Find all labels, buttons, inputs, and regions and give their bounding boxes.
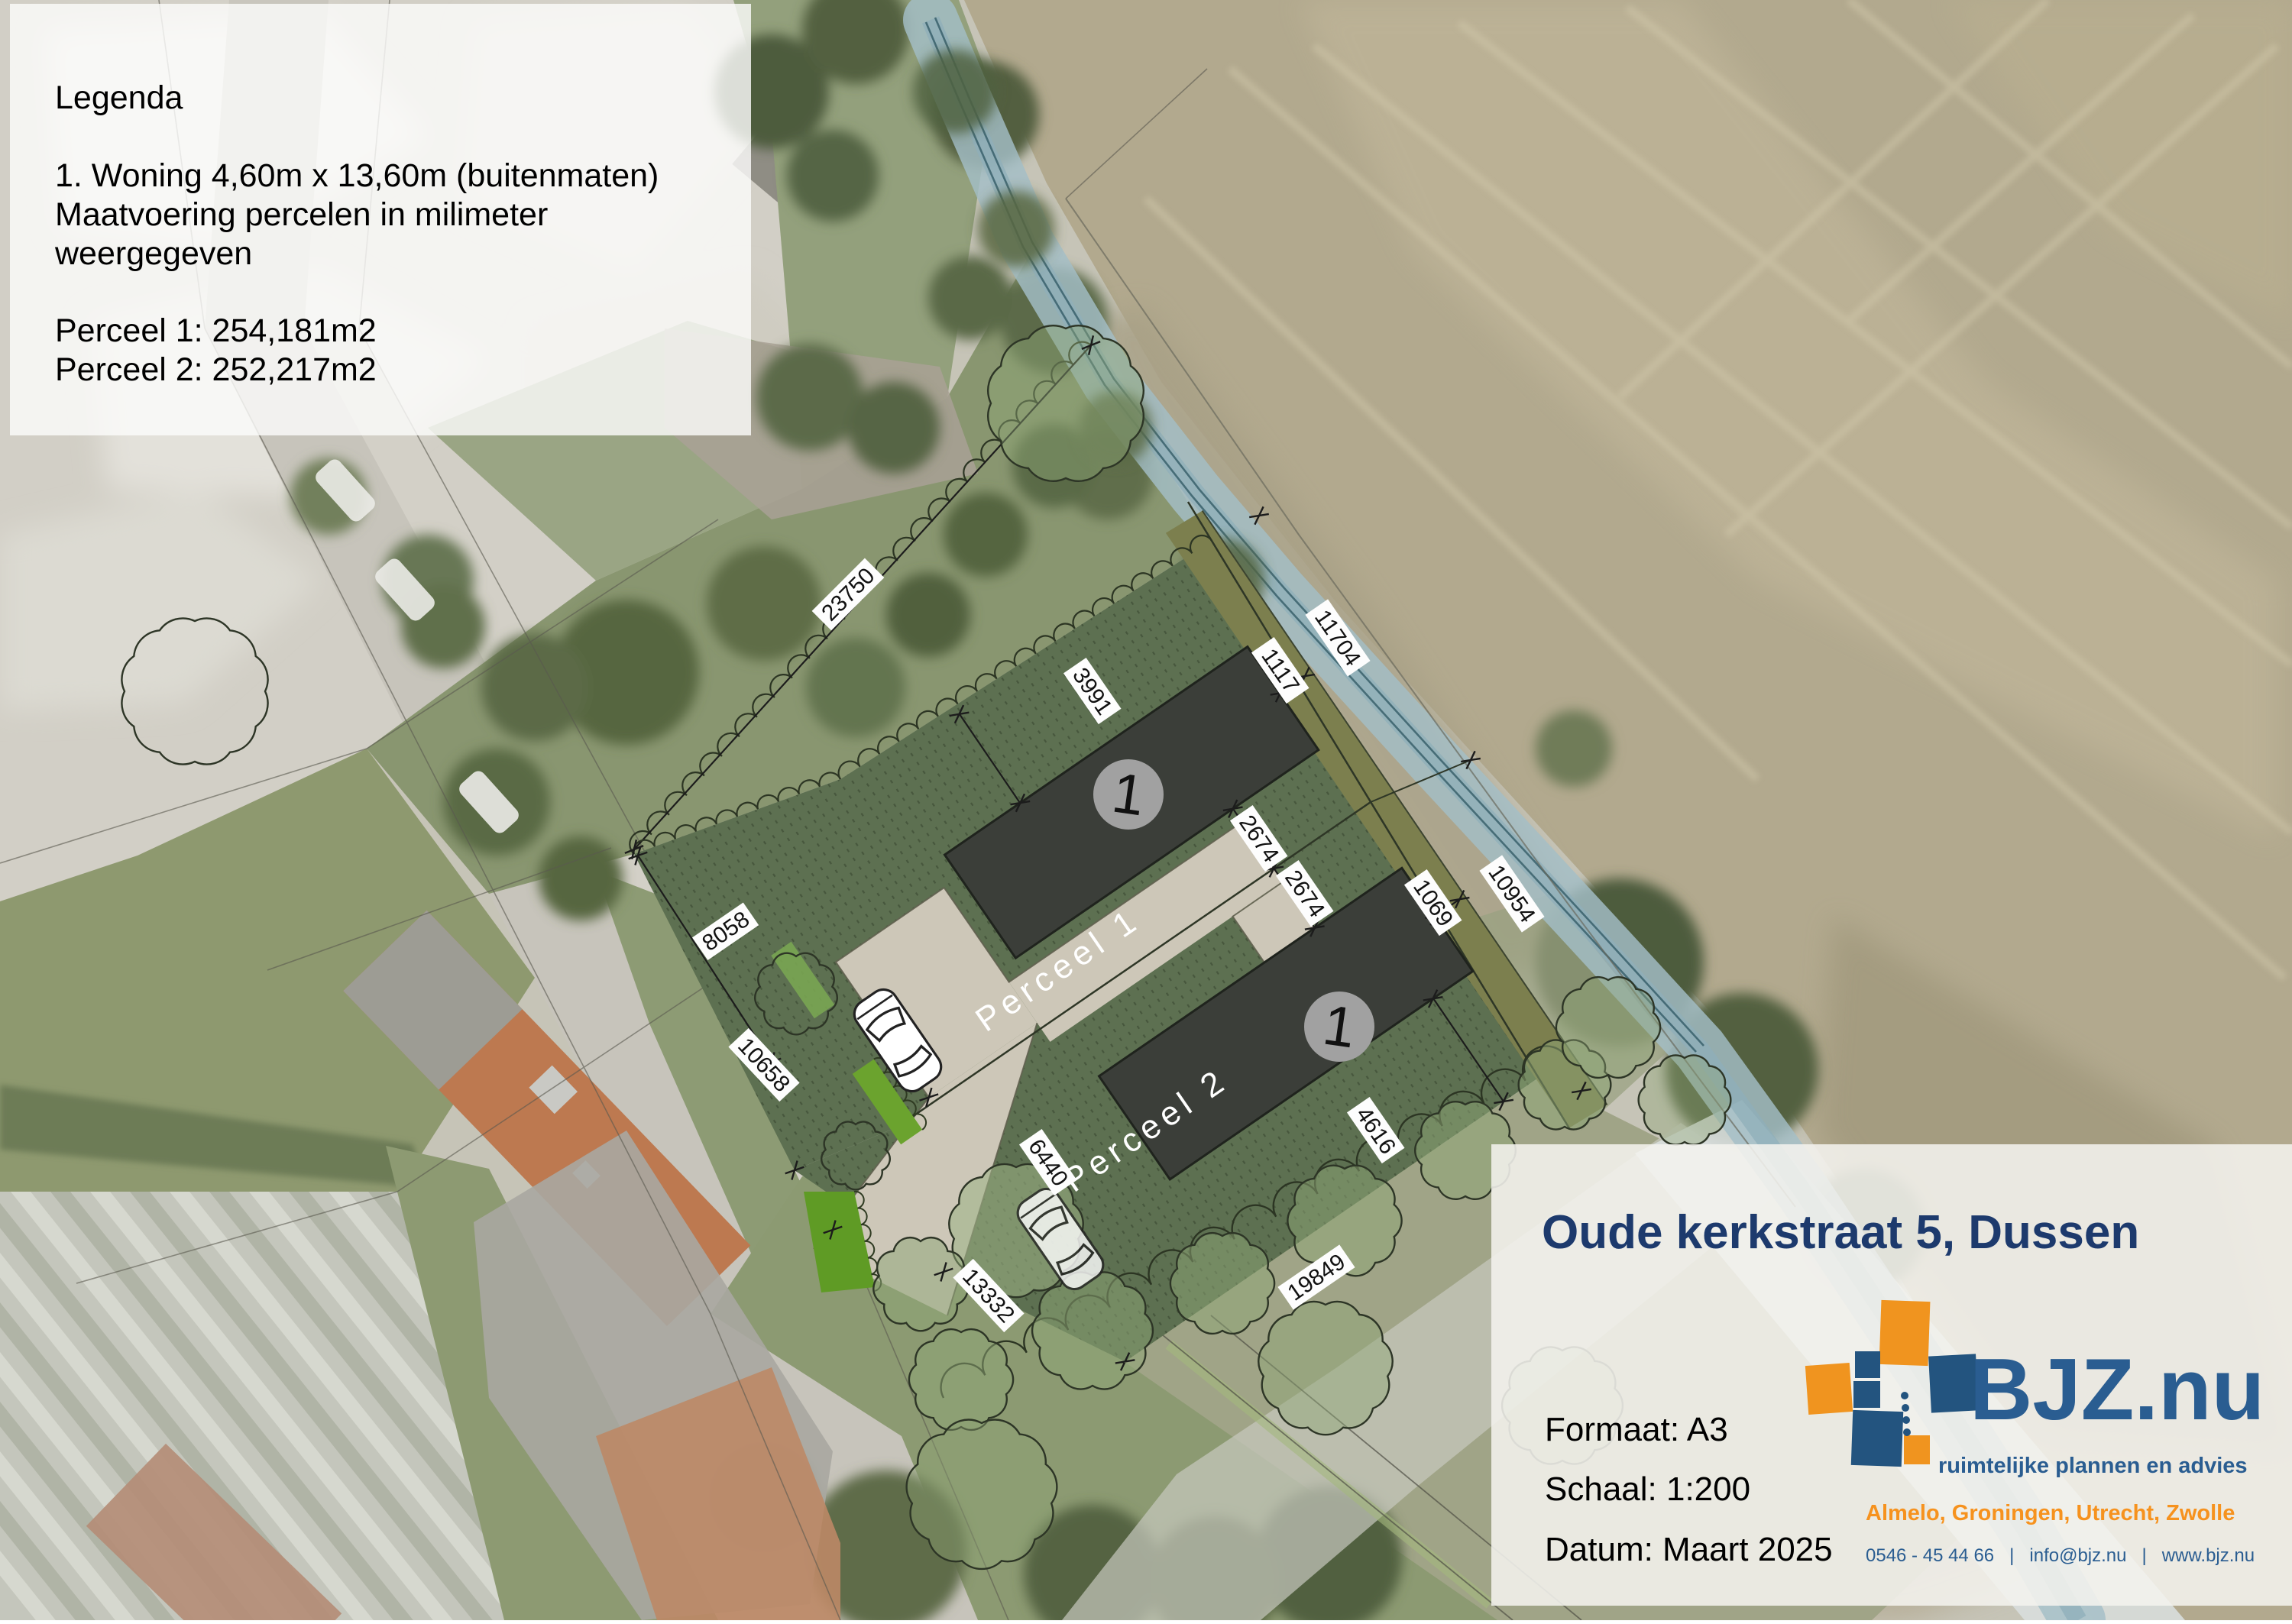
- svg-text:ruimtelijke plannen en advies: ruimtelijke plannen en advies: [1938, 1454, 2248, 1478]
- svg-text:Formaat: A3: Formaat: A3: [1545, 1411, 1728, 1448]
- svg-text:Almelo, Groningen, Utrecht, Zw: Almelo, Groningen, Utrecht, Zwolle: [1866, 1501, 2235, 1525]
- svg-text:Datum: Maart 2025: Datum: Maart 2025: [1545, 1531, 1833, 1568]
- svg-text:Perceel 1: 254,181m2: Perceel 1: 254,181m2: [55, 312, 377, 349]
- svg-text:Schaal: 1:200: Schaal: 1:200: [1545, 1470, 1750, 1508]
- svg-text:1. Woning 4,60m x 13,60m (buit: 1. Woning 4,60m x 13,60m (buitenmaten): [55, 157, 659, 194]
- svg-text:Perceel 2: 252,217m2: Perceel 2: 252,217m2: [55, 351, 377, 388]
- svg-text:Legenda: Legenda: [55, 79, 183, 116]
- svg-text:0546 - 45 44 66 | info@bjz: 0546 - 45 44 66 | info@bjz.nu | www.bjz.…: [1866, 1545, 2255, 1566]
- svg-text:weergegeven: weergegeven: [54, 235, 252, 272]
- svg-text:Maatvoering percelen in milime: Maatvoering percelen in milimeter: [55, 196, 548, 233]
- svg-text:BJZ.nu: BJZ.nu: [1970, 1341, 2264, 1438]
- svg-text:Oude kerkstraat 5, Dussen: Oude kerkstraat 5, Dussen: [1542, 1206, 2139, 1259]
